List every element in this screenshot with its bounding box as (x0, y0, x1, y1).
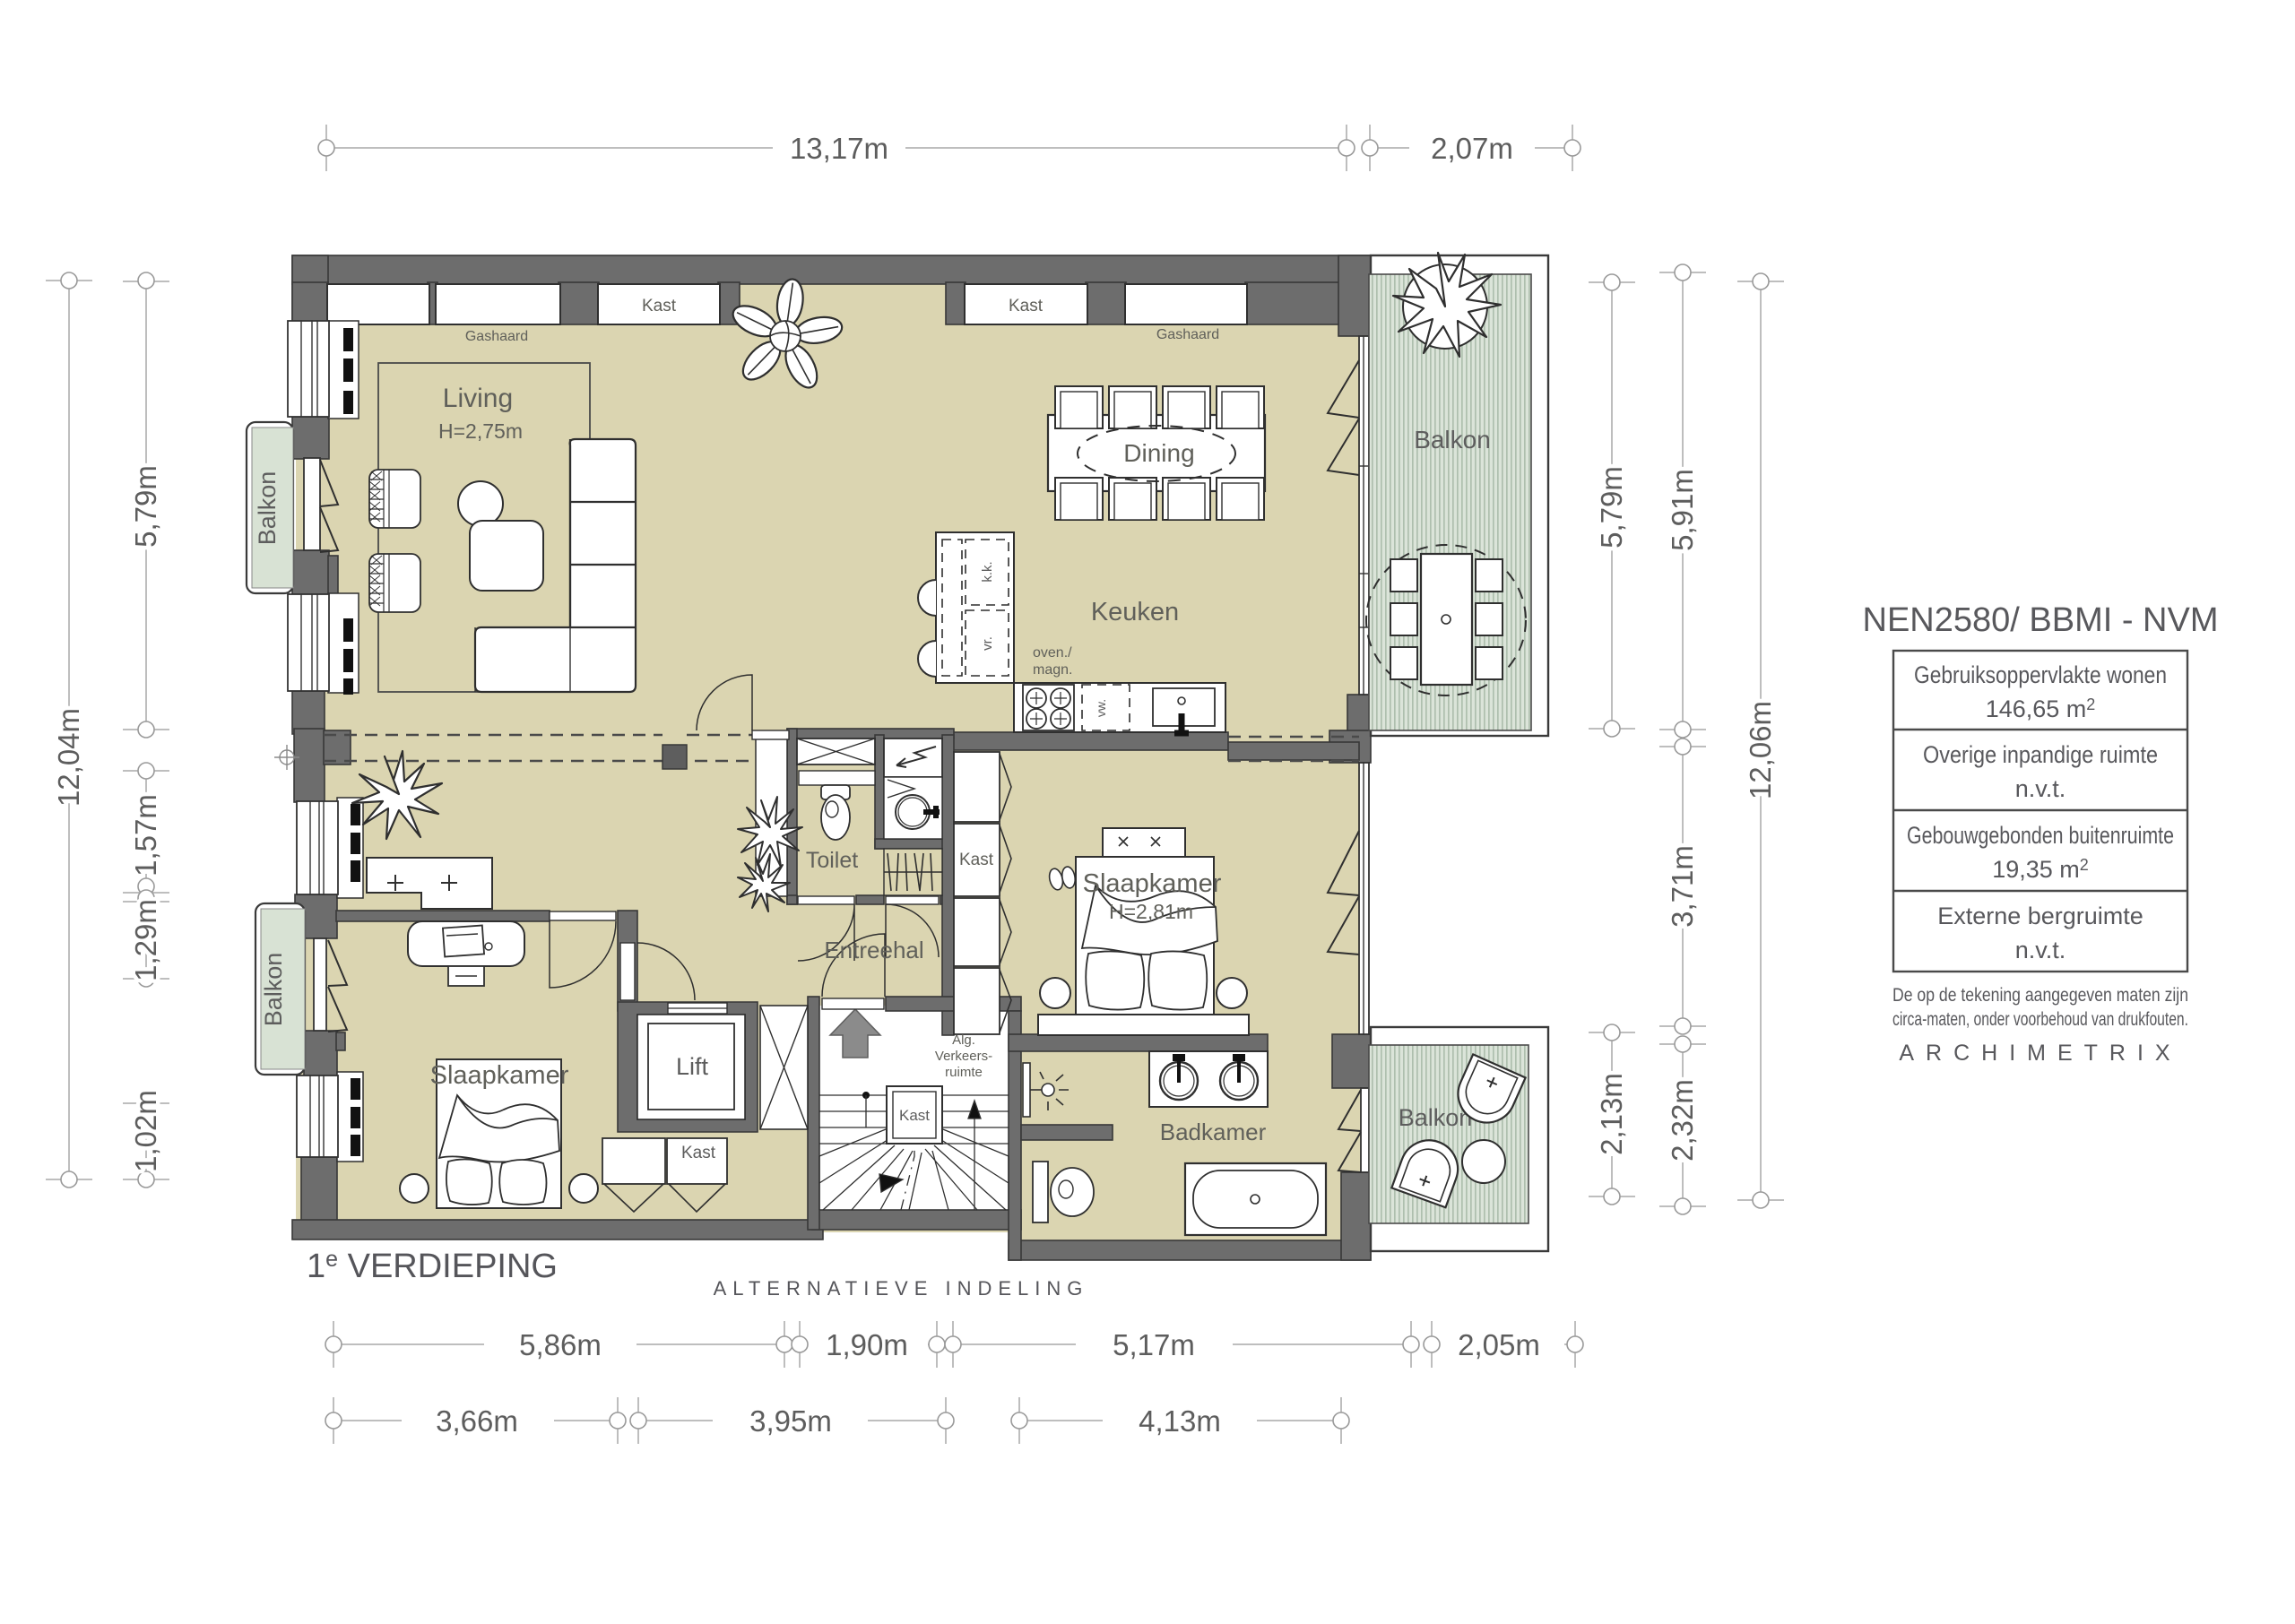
svg-text:Toilet: Toilet (806, 848, 858, 873)
svg-text:Gashaard: Gashaard (465, 329, 528, 344)
svg-text:De op de tekening aangegeven m: De op de tekening aangegeven maten zijn (1892, 985, 2188, 1006)
svg-text:Kast: Kast (642, 297, 677, 315)
svg-text:2,32m: 2,32m (1666, 1079, 1699, 1162)
svg-text:ruimte: ruimte (945, 1065, 983, 1080)
svg-text:vw.: vw. (1094, 699, 1108, 717)
svg-text:Entreehal: Entreehal (824, 937, 923, 963)
svg-text:Living: Living (443, 384, 513, 413)
svg-text:Dining: Dining (1123, 439, 1194, 467)
svg-text:Overige inpandige ruimte: Overige inpandige ruimte (1923, 741, 2158, 768)
svg-text:n.v.t.: n.v.t. (2015, 775, 2066, 802)
svg-text:H=2,81m: H=2,81m (1109, 900, 1193, 923)
svg-text:NEN2580/ BBMI - NVM: NEN2580/ BBMI - NVM (1863, 601, 2219, 639)
svg-text:Balkon: Balkon (254, 471, 281, 546)
svg-text:4,13m: 4,13m (1139, 1404, 1221, 1438)
svg-text:Balkon: Balkon (260, 953, 287, 1027)
svg-text:Verkeers-: Verkeers- (935, 1049, 992, 1064)
svg-text:Kast: Kast (899, 1107, 930, 1124)
svg-text:1,29m: 1,29m (129, 899, 162, 981)
svg-text:Kast: Kast (959, 851, 994, 869)
svg-text:Slaapkamer: Slaapkamer (1083, 869, 1222, 898)
svg-text:Slaapkamer: Slaapkamer (430, 1061, 569, 1090)
svg-text:1,02m: 1,02m (129, 1090, 162, 1172)
svg-text:5,86m: 5,86m (519, 1328, 602, 1361)
svg-text:ALTERNATIEVE INDELING: ALTERNATIEVE INDELING (714, 1277, 1089, 1300)
svg-text:2,13m: 2,13m (1595, 1073, 1628, 1155)
svg-text:19,35 m2: 19,35 m2 (1992, 856, 2089, 883)
svg-text:Kast: Kast (1009, 297, 1044, 315)
svg-text:12,04m: 12,04m (52, 708, 85, 807)
svg-text:Badkamer: Badkamer (1160, 1119, 1267, 1145)
svg-text:Externe bergruimte: Externe bergruimte (1937, 903, 2143, 929)
svg-text:k.k.: k.k. (980, 561, 995, 582)
svg-text:1e VERDIEPING: 1e VERDIEPING (307, 1247, 558, 1285)
svg-text:5,79m: 5,79m (1595, 466, 1628, 549)
svg-text:2,07m: 2,07m (1431, 132, 1513, 165)
svg-text:3,95m: 3,95m (749, 1404, 832, 1438)
svg-text:Keuken: Keuken (1091, 598, 1179, 626)
svg-text:5,91m: 5,91m (1666, 469, 1699, 551)
svg-text:circa-maten, onder voorbehoud: circa-maten, onder voorbehoud van drukfo… (1892, 1009, 2188, 1030)
svg-text:12,06m: 12,06m (1744, 701, 1777, 799)
svg-text:Balkon: Balkon (1414, 426, 1491, 454)
svg-text:146,65 m2: 146,65 m2 (1986, 695, 2096, 722)
svg-text:3,66m: 3,66m (436, 1404, 518, 1438)
svg-text:Gebruiksoppervlakte wonen: Gebruiksoppervlakte wonen (1914, 661, 2167, 688)
svg-text:Lift: Lift (676, 1053, 709, 1080)
svg-text:1,90m: 1,90m (826, 1328, 908, 1361)
svg-text:Alg.: Alg. (952, 1032, 975, 1048)
svg-text:5,79m: 5,79m (129, 465, 162, 548)
svg-text:Gashaard: Gashaard (1156, 327, 1219, 342)
svg-text:magn.: magn. (1033, 662, 1072, 678)
svg-text:13,17m: 13,17m (790, 132, 888, 165)
svg-text:2,05m: 2,05m (1458, 1328, 1540, 1361)
svg-text:5,17m: 5,17m (1113, 1328, 1195, 1361)
svg-text:H=2,75m: H=2,75m (438, 419, 523, 443)
svg-text:Kast: Kast (681, 1144, 716, 1162)
svg-text:Gebouwgebonden buitenruimte: Gebouwgebonden buitenruimte (1907, 822, 2174, 849)
svg-text:3,71m: 3,71m (1666, 845, 1699, 928)
svg-text:oven./: oven./ (1033, 645, 1072, 661)
svg-text:vr.: vr. (980, 636, 995, 651)
svg-text:n.v.t.: n.v.t. (2015, 937, 2066, 963)
svg-text:ARCHIMETRIX: ARCHIMETRIX (1899, 1041, 2181, 1066)
svg-text:1,57m: 1,57m (129, 794, 162, 877)
